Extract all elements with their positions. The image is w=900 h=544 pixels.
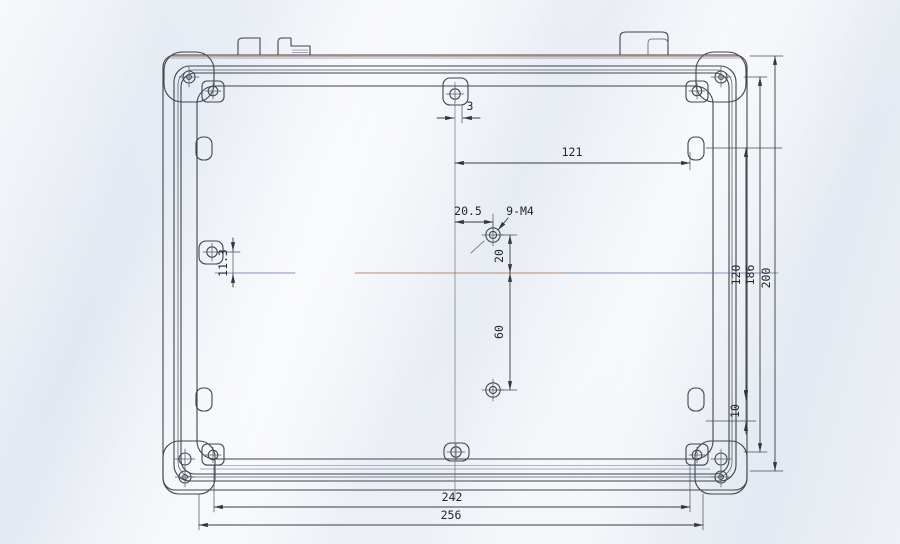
lug-screw-holes bbox=[175, 67, 731, 487]
corner-lug-bottom-left bbox=[163, 441, 215, 494]
dimension-3: 3 bbox=[437, 99, 480, 123]
dim-label-60: 60 bbox=[492, 325, 506, 339]
dim-label-242: 242 bbox=[442, 490, 463, 504]
dimension-20-5: 20.5 bbox=[454, 204, 493, 229]
dim-label-10: 10 bbox=[728, 404, 742, 418]
corner-bracket bbox=[686, 444, 708, 465]
scanned-drawing-page: 3 121 20.5 9-M4 20 60 bbox=[0, 0, 900, 544]
right-slot-upper bbox=[688, 137, 704, 160]
thread-callout-label: 9-M4 bbox=[506, 204, 534, 218]
dim-label-3: 3 bbox=[467, 99, 474, 113]
dim-label-200: 200 bbox=[759, 268, 773, 289]
dimension-20: 20 bbox=[492, 235, 517, 273]
lug-hole bbox=[175, 467, 195, 487]
thread-tick bbox=[471, 241, 484, 253]
dim-label-20-5: 20.5 bbox=[454, 204, 482, 218]
dimension-11-3: 11.3 bbox=[216, 238, 240, 287]
dimension-200: 200 bbox=[750, 56, 783, 471]
corner-bracket bbox=[202, 444, 224, 465]
left-slot-lower bbox=[196, 388, 212, 411]
edge-screw-tabs bbox=[199, 78, 469, 461]
lug-hole bbox=[711, 467, 731, 487]
centerlines bbox=[215, 82, 778, 500]
edge-tab-top-center bbox=[443, 78, 468, 105]
right-slot-lower bbox=[688, 388, 704, 411]
dimension-121: 121 bbox=[455, 145, 690, 170]
edge-tab-bottom-center bbox=[444, 443, 469, 461]
dim-label-256: 256 bbox=[441, 508, 462, 522]
top-tab-wide-notch bbox=[648, 39, 668, 55]
dim-label-11-3: 11.3 bbox=[216, 249, 230, 277]
top-tab-wide bbox=[620, 32, 668, 55]
top-tab-small bbox=[238, 38, 260, 55]
dim-label-20: 20 bbox=[492, 249, 506, 263]
dim-label-121: 121 bbox=[562, 145, 583, 159]
technical-drawing: 3 121 20.5 9-M4 20 60 bbox=[0, 0, 900, 544]
dim-label-120: 120 bbox=[729, 265, 743, 286]
thread-callout: 9-M4 bbox=[498, 204, 534, 230]
dimension-60: 60 bbox=[492, 273, 517, 390]
dim-label-186: 186 bbox=[743, 265, 757, 286]
left-slot-upper bbox=[196, 137, 212, 160]
dimension-242: 242 bbox=[214, 466, 690, 512]
